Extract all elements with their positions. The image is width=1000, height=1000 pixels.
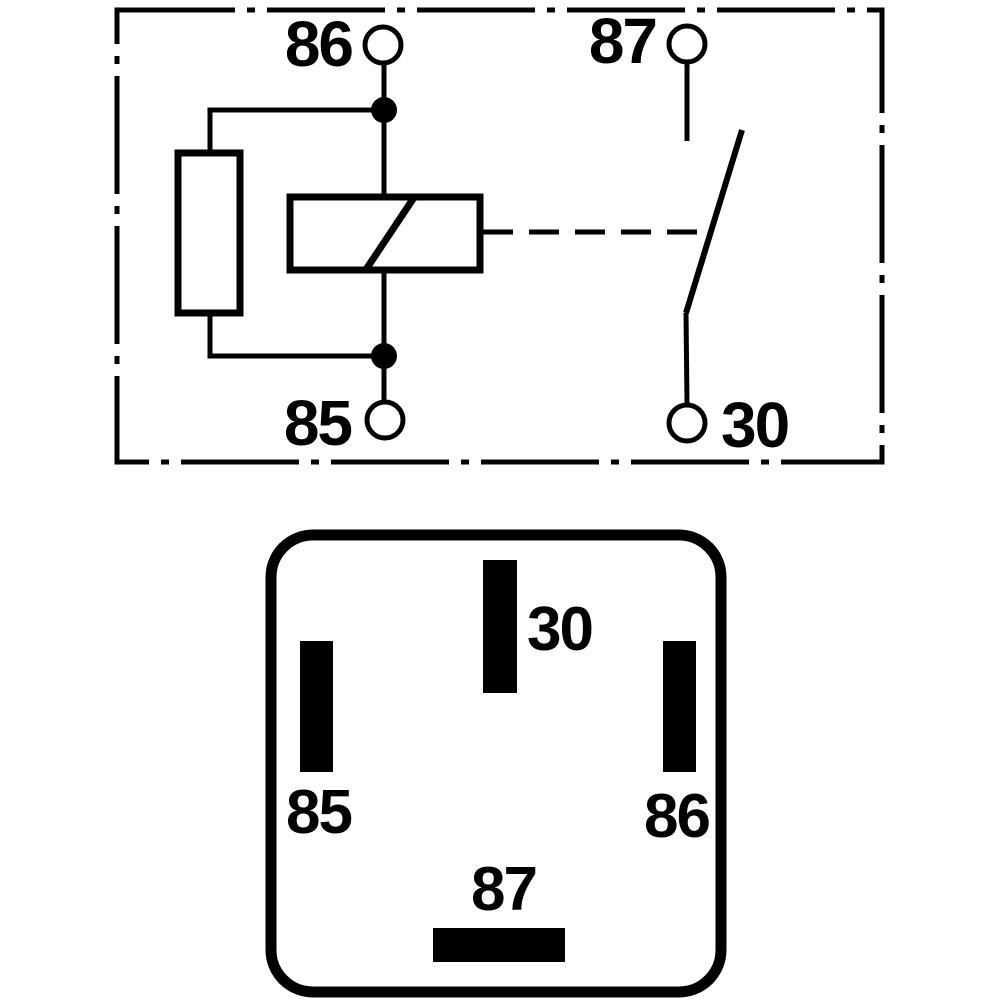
coil-symbol bbox=[290, 197, 480, 270]
pin-label-30: 30 bbox=[527, 595, 592, 664]
wire-blade-to-30 bbox=[686, 313, 687, 404]
terminal-label-87: 87 bbox=[589, 5, 656, 77]
pin-label-86: 86 bbox=[644, 782, 709, 851]
pin-slot-85 bbox=[300, 641, 333, 772]
junction-dot-bottom bbox=[371, 343, 397, 369]
terminal-circle-86 bbox=[365, 27, 401, 63]
switch-blade bbox=[686, 130, 742, 313]
wire-resistor-branch-top bbox=[210, 110, 384, 154]
pin-slot-86 bbox=[663, 641, 696, 772]
pin-slot-87 bbox=[433, 928, 565, 962]
pin-slot-30 bbox=[483, 560, 517, 693]
pin-label-87: 87 bbox=[471, 855, 536, 924]
terminal-circle-30 bbox=[669, 405, 705, 441]
terminal-label-85: 85 bbox=[284, 387, 352, 459]
terminal-circle-87 bbox=[669, 26, 705, 62]
terminal-label-86: 86 bbox=[285, 8, 353, 80]
terminal-label-30: 30 bbox=[721, 389, 788, 461]
relay-diagram-page: 86 87 85 30 30 85 86 87 bbox=[0, 0, 1000, 1000]
junction-dot-top bbox=[371, 97, 397, 123]
pin-label-85: 85 bbox=[286, 778, 351, 847]
parallel-resistor-symbol bbox=[178, 153, 240, 313]
terminal-circle-85 bbox=[367, 402, 403, 438]
relay-diagram-canvas: 86 87 85 30 30 85 86 87 bbox=[0, 0, 1000, 1000]
